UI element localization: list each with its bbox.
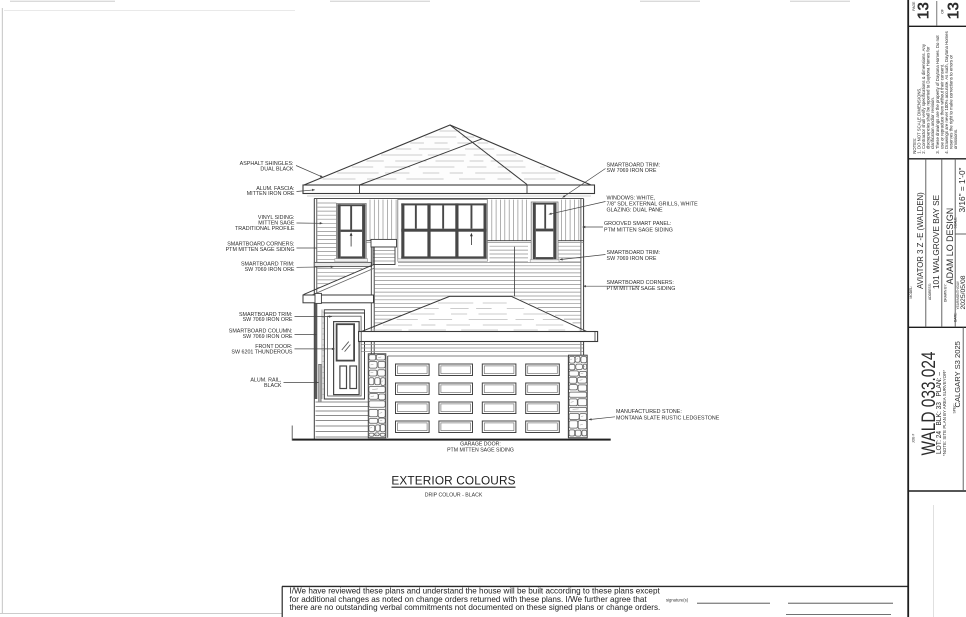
svg-text:MONTANA SLATE RUSTIC LEDGESTON: MONTANA SLATE RUSTIC LEDGESTONE bbox=[616, 415, 720, 421]
svg-text:DRAWN BY:: DRAWN BY: bbox=[943, 284, 947, 302]
svg-text:GLAZING: DUAL PANE: GLAZING: DUAL PANE bbox=[607, 208, 664, 214]
svg-text:PTM MITTEN SAGE SIDING: PTM MITTEN SAGE SIDING bbox=[607, 286, 676, 292]
svg-text:PTM MITTEN SAGE SIDING: PTM MITTEN SAGE SIDING bbox=[226, 247, 295, 253]
svg-text:TRADITIONAL PROFILE: TRADITIONAL PROFILE bbox=[235, 226, 295, 232]
svg-text:CALGARY S3 2025: CALGARY S3 2025 bbox=[953, 341, 962, 407]
svg-text:MITTEN IRON ORE: MITTEN IRON ORE bbox=[247, 191, 295, 197]
svg-text:DRIP COLOUR - BLACK: DRIP COLOUR - BLACK bbox=[425, 493, 483, 499]
svg-text:omissions.: omissions. bbox=[953, 129, 958, 154]
svg-text:SW 6201 THUNDEROUS: SW 6201 THUNDEROUS bbox=[231, 350, 293, 356]
svg-text:101 WALGROVE BAY SE: 101 WALGROVE BAY SE bbox=[932, 194, 941, 289]
svg-text:EXTERIOR COLOURS: EXTERIOR COLOURS bbox=[391, 473, 515, 487]
svg-text:JOB #: JOB # bbox=[911, 434, 915, 443]
svg-text:13: 13 bbox=[916, 2, 933, 20]
svg-text:SW 7069 IRON ORE: SW 7069 IRON ORE bbox=[245, 267, 295, 273]
svg-text:ADDRESS:: ADDRESS: bbox=[928, 283, 932, 300]
svg-text:signature(s): signature(s) bbox=[666, 597, 689, 602]
svg-text:SW 7069 IRON ORE: SW 7069 IRON ORE bbox=[243, 334, 293, 340]
svg-text:AVIATOR 3 Z -E (WALDEN): AVIATOR 3 Z -E (WALDEN) bbox=[916, 192, 925, 289]
svg-text:DUAL BLACK: DUAL BLACK bbox=[260, 167, 294, 173]
svg-text:2025/05/08: 2025/05/08 bbox=[960, 275, 966, 309]
svg-text:DATE:: DATE: bbox=[954, 312, 958, 322]
svg-text:OF: OF bbox=[941, 9, 945, 14]
svg-text:BLACK: BLACK bbox=[264, 383, 282, 389]
svg-text:SW 7069 IRON ORE: SW 7069 IRON ORE bbox=[607, 256, 657, 262]
svg-text:PTM MITTEN SAGE SIDING: PTM MITTEN SAGE SIDING bbox=[604, 227, 673, 233]
svg-text:MODEL:: MODEL: bbox=[909, 286, 913, 299]
svg-text:3/16" = 1'-0": 3/16" = 1'-0" bbox=[957, 167, 966, 212]
svg-text:7/8" SDL EXTERNAL GRILLS, WHIT: 7/8" SDL EXTERNAL GRILLS, WHITE bbox=[607, 202, 699, 208]
svg-text:SMARTBOARD TRIM:: SMARTBOARD TRIM: bbox=[607, 250, 661, 256]
svg-text:13: 13 bbox=[946, 2, 963, 20]
svg-text:MANUFACTURED STONE:: MANUFACTURED STONE: bbox=[616, 409, 682, 415]
svg-text:SW 7069 IRON ORE: SW 7069 IRON ORE bbox=[607, 168, 657, 174]
svg-text:there are no outstanding verba: there are no outstanding verbal commitme… bbox=[290, 603, 661, 612]
svg-text:*NOTE: SITE PLAN BY AREA SURVE: *NOTE: SITE PLAN BY AREA SURVEYOR* bbox=[942, 370, 947, 456]
svg-text:SMARTBOARD CORNERS:: SMARTBOARD CORNERS: bbox=[607, 280, 674, 286]
svg-text:GROOVED SMART PANEL:: GROOVED SMART PANEL: bbox=[604, 221, 671, 227]
svg-text:SCALE:: SCALE: bbox=[954, 217, 958, 229]
svg-text:SW 7069 IRON ORE: SW 7069 IRON ORE bbox=[243, 317, 293, 323]
svg-text:PTM MITTEN SAGE SIDING: PTM MITTEN SAGE SIDING bbox=[447, 448, 514, 454]
svg-text:WINDOWS: WHITE,: WINDOWS: WHITE, bbox=[607, 196, 656, 202]
